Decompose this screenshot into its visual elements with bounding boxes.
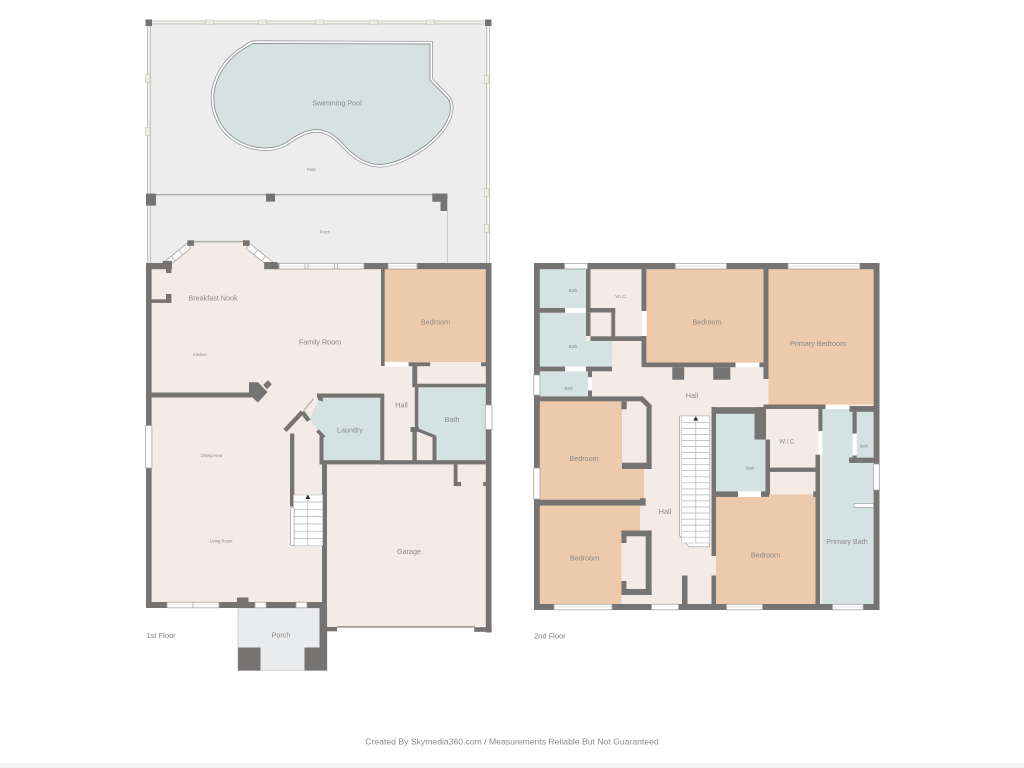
svg-text:Bath: Bath bbox=[445, 415, 460, 424]
svg-text:1st Floor: 1st Floor bbox=[147, 631, 177, 640]
svg-text:Primary Bath: Primary Bath bbox=[826, 537, 868, 546]
svg-text:Bath: Bath bbox=[746, 466, 755, 471]
svg-text:Bath: Bath bbox=[569, 344, 578, 349]
svg-text:Dining Area: Dining Area bbox=[201, 453, 223, 458]
svg-text:Kitchen: Kitchen bbox=[193, 352, 207, 357]
svg-text:Bedroom: Bedroom bbox=[692, 318, 721, 327]
svg-text:Bedroom: Bedroom bbox=[751, 551, 780, 560]
svg-text:Hall: Hall bbox=[395, 400, 408, 409]
svg-text:Hall: Hall bbox=[686, 391, 699, 400]
svg-text:Breakfast Nook: Breakfast Nook bbox=[188, 293, 238, 302]
svg-text:Primary Bedroom: Primary Bedroom bbox=[790, 339, 846, 348]
svg-text:Bath: Bath bbox=[569, 288, 578, 293]
svg-text:Bath: Bath bbox=[860, 444, 869, 449]
svg-text:Bedroom: Bedroom bbox=[421, 318, 450, 327]
svg-text:2nd Floor: 2nd Floor bbox=[534, 632, 566, 641]
svg-text:W.I.C.: W.I.C. bbox=[779, 439, 796, 445]
svg-text:Laundry: Laundry bbox=[337, 425, 363, 434]
svg-text:W.I.C.: W.I.C. bbox=[615, 294, 626, 299]
svg-text:Bedroom: Bedroom bbox=[570, 554, 599, 563]
svg-text:Swimming Pool: Swimming Pool bbox=[312, 99, 362, 108]
svg-text:Living Room: Living Room bbox=[210, 538, 233, 543]
svg-text:Porch: Porch bbox=[320, 230, 331, 235]
svg-text:Created By Skymedia360.com / M: Created By Skymedia360.com / Measurement… bbox=[365, 737, 659, 747]
svg-text:Bedroom: Bedroom bbox=[569, 454, 598, 463]
svg-text:Patio: Patio bbox=[307, 167, 317, 172]
svg-text:Hall: Hall bbox=[659, 507, 672, 516]
svg-text:Porch: Porch bbox=[272, 630, 291, 639]
svg-text:Bath: Bath bbox=[564, 386, 573, 391]
svg-text:Garage: Garage bbox=[397, 547, 421, 556]
svg-text:Family Room: Family Room bbox=[299, 337, 341, 346]
